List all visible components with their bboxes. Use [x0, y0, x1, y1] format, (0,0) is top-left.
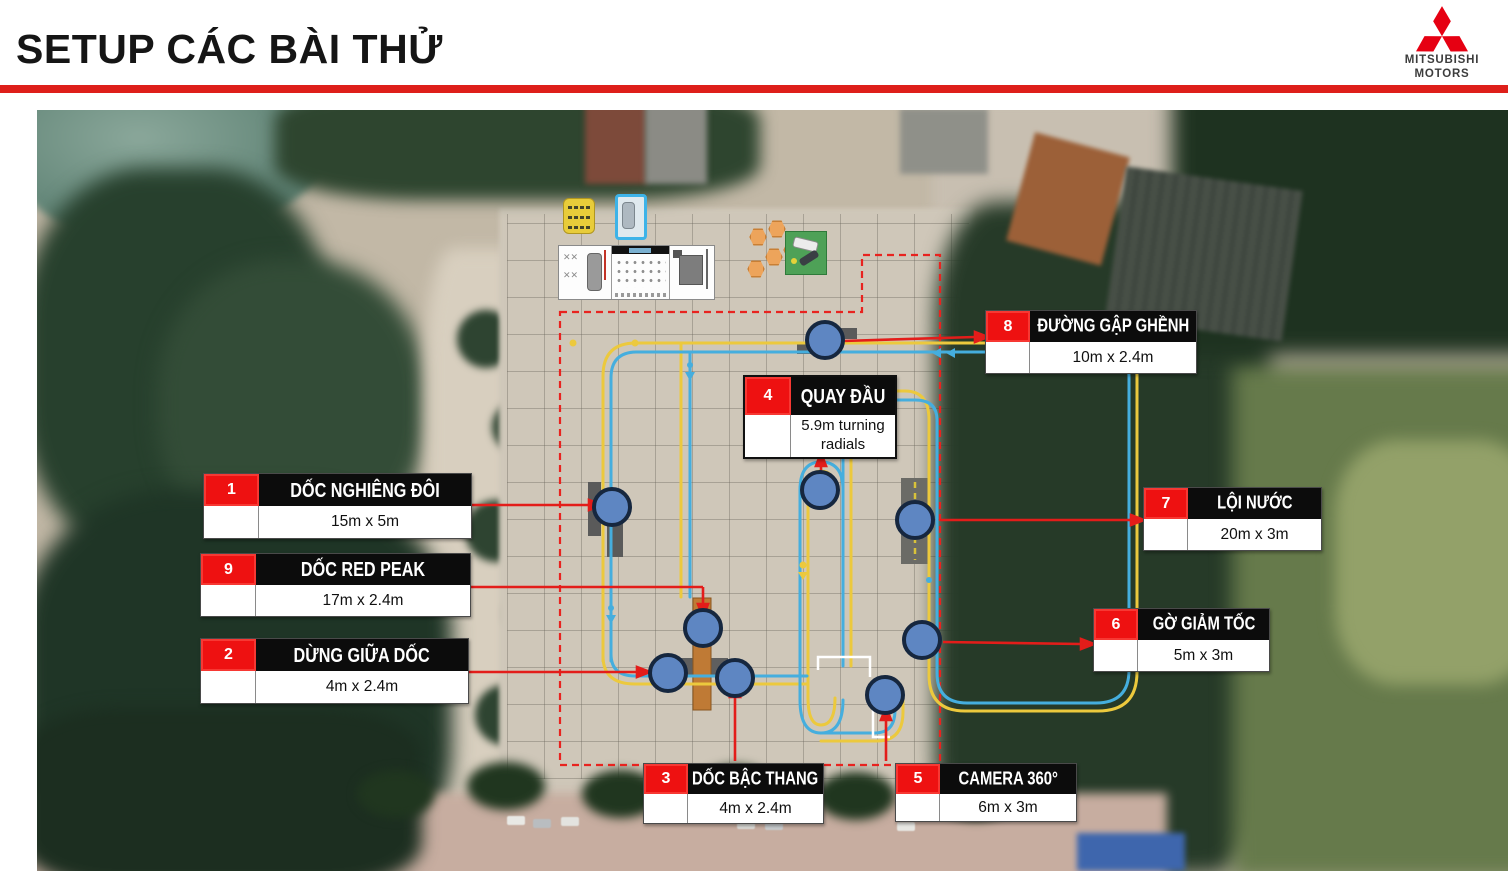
callout-7: 7 LỘI NƯỚC 20m x 3m — [1143, 487, 1322, 551]
brand-name-line1: MITSUBISHI — [1390, 54, 1494, 68]
callout-dimensions: 5.9m turningradials — [791, 415, 895, 457]
callout-title: DỐC BẬC THANG — [688, 764, 823, 794]
callout-title: DỪNG GIỮA DỐC — [256, 639, 468, 671]
callout-spacer — [745, 415, 791, 457]
page-title: SETUP CÁC BÀI THỬ — [16, 26, 443, 73]
callout-9: 9 DỐC RED PEAK 17m x 2.4m — [200, 553, 471, 617]
callout-5: 5 CAMERA 360° 6m x 3m — [895, 763, 1077, 822]
callout-spacer — [1144, 519, 1188, 550]
callout-title: QUAY ĐẦU — [791, 377, 895, 415]
callout-spacer — [1094, 640, 1138, 671]
callout-number: 4 — [745, 377, 791, 415]
callout-6: 6 GỜ GIẢM TỐC 5m x 3m — [1093, 608, 1270, 672]
callout-dimensions: 17m x 2.4m — [256, 585, 470, 616]
callout-8: 8 ĐƯỜNG GẬP GHỀNH 10m x 2.4m — [985, 310, 1197, 374]
callout-number: 1 — [204, 474, 259, 506]
callout-title: GỜ GIẢM TỐC — [1138, 609, 1269, 640]
callout-dimensions: 6m x 3m — [940, 794, 1076, 821]
station-9-marker — [685, 610, 721, 646]
header-rule — [0, 85, 1508, 93]
station-7-marker — [897, 502, 933, 538]
callout-dimensions: 10m x 2.4m — [1030, 342, 1196, 373]
callout-number: 9 — [201, 554, 256, 585]
callout-spacer — [644, 794, 688, 823]
callout-spacer — [204, 506, 259, 538]
callout-2: 2 DỪNG GIỮA DỐC 4m x 2.4m — [200, 638, 469, 704]
callout-spacer — [986, 342, 1030, 373]
callout-dimensions: 5m x 3m — [1138, 640, 1269, 671]
satellite-map: ✕✕ ✕✕ — [37, 110, 1508, 871]
brand-name-line2: MOTORS — [1390, 68, 1494, 82]
callout-title: ĐƯỜNG GẬP GHỀNH — [1030, 311, 1196, 342]
callout-dimensions: 4m x 2.4m — [688, 794, 823, 823]
mitsubishi-diamond-icon — [1416, 6, 1468, 52]
station-1-marker — [594, 489, 630, 525]
brand-logo: MITSUBISHI MOTORS — [1390, 6, 1494, 82]
slide: SETUP CÁC BÀI THỬ MITSUBISHI MOTORS — [0, 0, 1508, 871]
callout-title: DỐC RED PEAK — [256, 554, 470, 585]
callout-number: 3 — [644, 764, 688, 794]
callout-number: 7 — [1144, 488, 1188, 519]
station-8-marker — [807, 322, 843, 358]
callout-number: 8 — [986, 311, 1030, 342]
callout-dimensions: 15m x 5m — [259, 506, 471, 538]
callout-number: 2 — [201, 639, 256, 671]
station-6-marker — [904, 622, 940, 658]
callout-dimensions: 20m x 3m — [1188, 519, 1321, 550]
callout-spacer — [201, 585, 256, 616]
callout-3: 3 DỐC BẬC THANG 4m x 2.4m — [643, 763, 824, 824]
station-5-marker — [867, 677, 903, 713]
callout-title: DỐC NGHIÊNG ĐÔI — [259, 474, 471, 506]
callout-title: CAMERA 360° — [940, 764, 1076, 794]
callout-number: 5 — [896, 764, 940, 794]
callout-spacer — [201, 671, 256, 703]
callout-title: LỘI NƯỚC — [1188, 488, 1321, 519]
station-4-marker — [802, 472, 838, 508]
callout-dimensions: 4m x 2.4m — [256, 671, 468, 703]
callout-1: 1 DỐC NGHIÊNG ĐÔI 15m x 5m — [203, 473, 472, 539]
station-3-marker — [717, 660, 753, 696]
callout-4: 4 QUAY ĐẦU 5.9m turningradials — [743, 375, 897, 459]
callout-number: 6 — [1094, 609, 1138, 640]
station-2-marker — [650, 655, 686, 691]
callout-spacer — [896, 794, 940, 821]
